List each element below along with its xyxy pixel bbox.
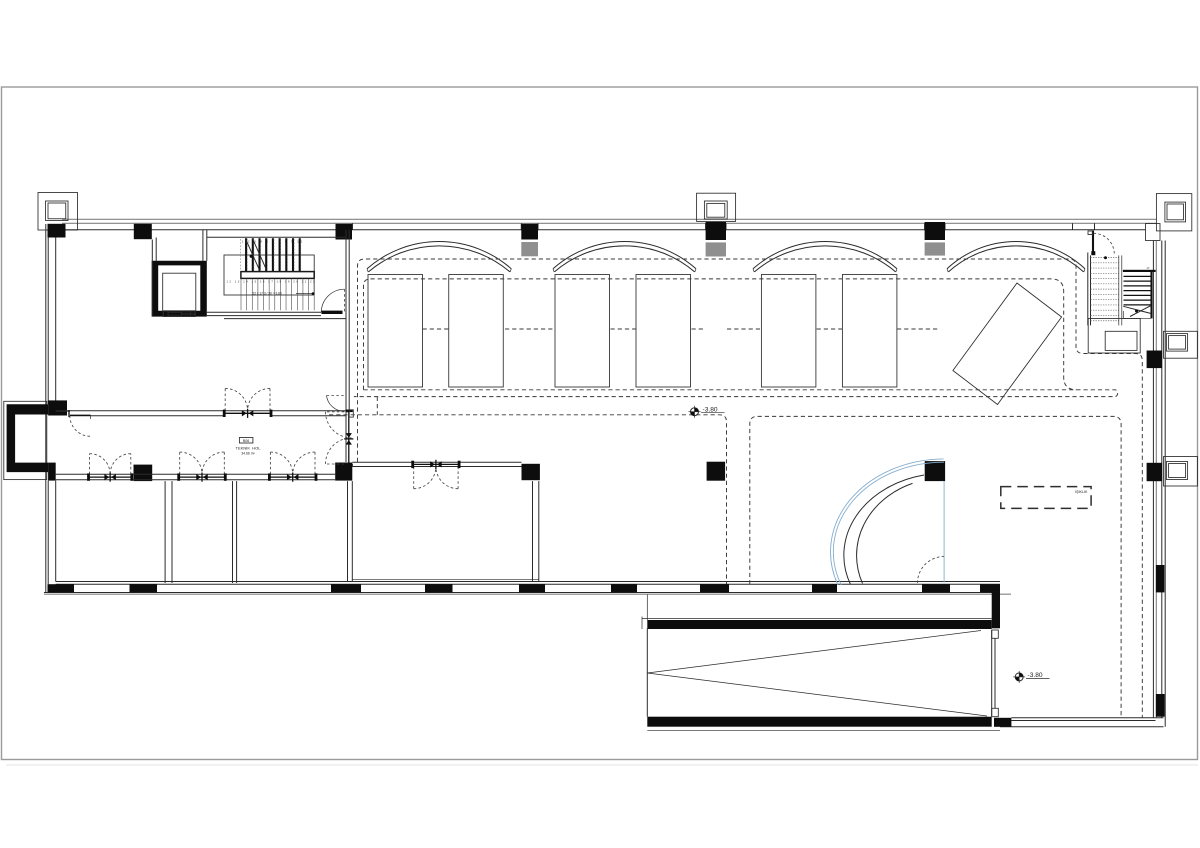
svg-text:34.66 m²: 34.66 m² xyxy=(241,452,255,456)
svg-text:B06: B06 xyxy=(243,439,249,443)
svg-text:IŞIKLIK: IŞIKLIK xyxy=(1075,490,1088,494)
svg-text:1 2 3 4 5 6 7 8 9 10: 1 2 3 4 5 6 7 8 9 10 xyxy=(242,240,303,243)
svg-text:22 x 17.3 / 30 = 3.80: 22 x 17.3 / 30 = 3.80 xyxy=(253,291,282,295)
svg-text:TEKNİK HOL: TEKNİK HOL xyxy=(236,446,262,451)
svg-text:-3.80: -3.80 xyxy=(1028,672,1043,679)
svg-text:-3.80: -3.80 xyxy=(703,406,718,413)
